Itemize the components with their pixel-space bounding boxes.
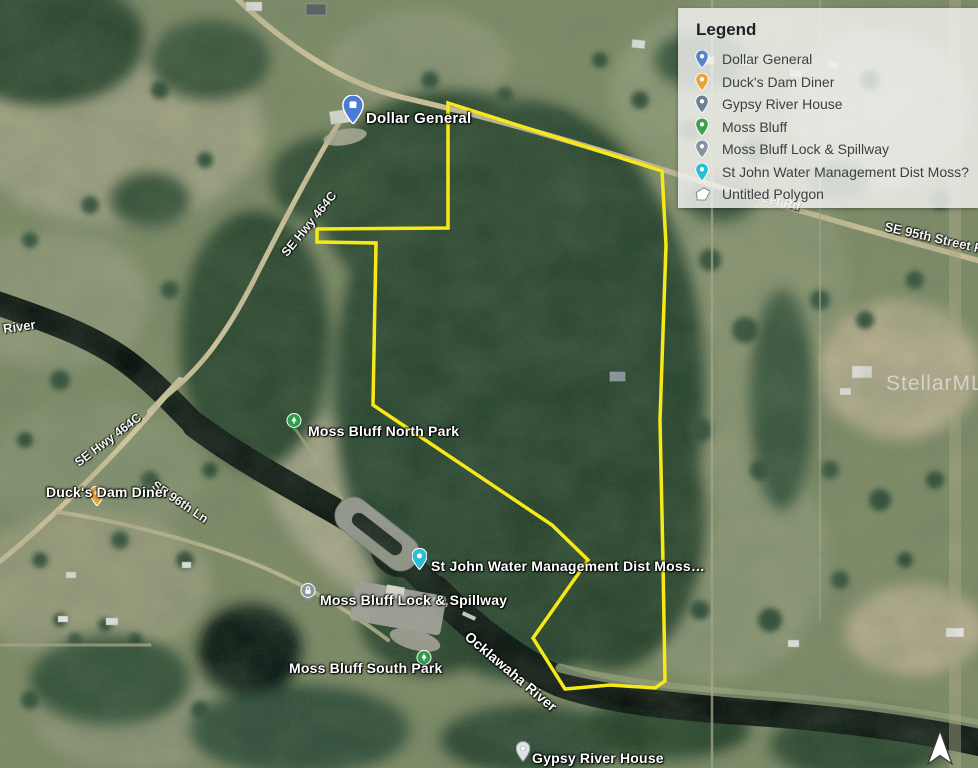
map-label-gypsy-river-house: Gypsy River House xyxy=(532,750,664,766)
legend-item-ducks-dam-diner[interactable]: Duck's Dam Diner xyxy=(694,71,978,94)
pin-icon xyxy=(694,118,710,136)
map-label-st-john-water: St John Water Management Dist Moss… xyxy=(431,558,705,574)
map-label-moss-bluff-lock: Moss Bluff Lock & Spillway xyxy=(320,592,507,608)
map-label-moss-bluff-north-park: Moss Bluff North Park xyxy=(308,423,459,439)
moss-bluff-lock-pin[interactable] xyxy=(300,583,316,603)
map-label-ducks-dam-diner: Duck's Dam Diner xyxy=(46,484,168,500)
legend-item-untitled-polygon[interactable]: Untitled Polygon xyxy=(694,183,978,206)
pin-icon xyxy=(694,163,710,181)
legend-item-moss-bluff-lock[interactable]: Moss Bluff Lock & Spillway xyxy=(694,138,978,161)
legend-title: Legend xyxy=(696,20,978,40)
satellite-map[interactable]: Dollar General SE Hwy 464C SE Hwy 464C R… xyxy=(0,0,978,768)
stellar-mls-watermark: StellarMLS xyxy=(886,372,978,396)
legend-item-label: Gypsy River House xyxy=(722,96,843,112)
pin-icon xyxy=(694,140,710,158)
dollar-general-pin[interactable] xyxy=(342,95,364,124)
gypsy-river-house-pin[interactable] xyxy=(516,741,530,762)
legend-item-label: Untitled Polygon xyxy=(722,186,824,202)
legend-item-label: St John Water Management Dist Moss? xyxy=(722,164,969,180)
legend-item-label: Dollar General xyxy=(722,51,812,67)
legend-panel: Legend Dollar General Duck's Dam Diner G… xyxy=(678,8,978,208)
pin-icon xyxy=(694,73,710,91)
st-john-water-pin[interactable] xyxy=(412,548,427,570)
pin-icon xyxy=(694,50,710,68)
legend-item-gypsy-river-house[interactable]: Gypsy River House xyxy=(694,93,978,116)
legend-item-label: Duck's Dam Diner xyxy=(722,74,834,90)
polygon-icon xyxy=(694,186,710,202)
north-arrow-icon[interactable] xyxy=(922,729,958,768)
map-label-dollar-general: Dollar General xyxy=(366,110,471,127)
moss-bluff-north-park-pin[interactable] xyxy=(286,413,302,433)
map-label-moss-bluff-south-park: Moss Bluff South Park xyxy=(289,660,443,676)
legend-item-moss-bluff[interactable]: Moss Bluff xyxy=(694,116,978,139)
legend-item-dollar-general[interactable]: Dollar General xyxy=(694,48,978,71)
legend-item-st-john-water[interactable]: St John Water Management Dist Moss? xyxy=(694,161,978,184)
legend-item-label: Moss Bluff xyxy=(722,119,787,135)
legend-item-label: Moss Bluff Lock & Spillway xyxy=(722,141,889,157)
pin-icon xyxy=(694,95,710,113)
